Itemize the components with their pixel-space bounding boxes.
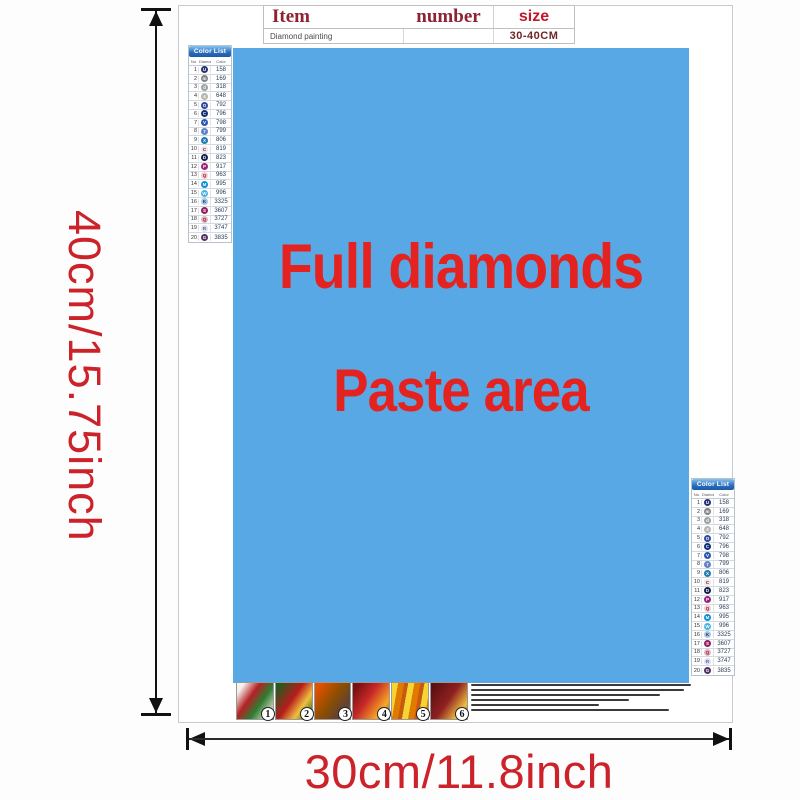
instruction-text-line (471, 689, 684, 691)
color-row-number: 5 (189, 102, 199, 108)
diamond-symbol-cell: Q (199, 172, 211, 179)
color-row: 19R3747 (189, 224, 231, 233)
diamond-symbol-cell: M (702, 614, 714, 621)
dmc-color-code: 995 (211, 181, 231, 187)
product-name-cell: Diamond painting (264, 29, 404, 43)
dmc-color-code: 792 (211, 102, 231, 108)
color-row-number: 6 (692, 544, 702, 550)
dmc-color-code: 3747 (714, 658, 734, 664)
step-thumbnail-2: 2 (275, 682, 313, 720)
diamond-symbol-icon: Q (201, 216, 208, 223)
diamond-symbol-cell: X (199, 137, 211, 144)
dmc-color-code: 963 (714, 605, 734, 611)
color-row: 15W996 (692, 622, 734, 631)
dmc-color-code: 158 (714, 500, 734, 506)
diamond-symbol-icon: X (201, 137, 208, 144)
height-dimension-arrow (141, 8, 171, 716)
color-list-column-headers: No. Diamond Color (692, 490, 734, 499)
diamond-symbol-icon: 7 (704, 561, 711, 568)
diamond-symbol-cell: O (199, 102, 211, 109)
color-row: 7V798 (692, 552, 734, 561)
color-row-number: 4 (692, 526, 702, 532)
column-color-label: Color (714, 492, 734, 497)
arrow-vertical-line (155, 11, 157, 713)
color-row: 16K3325 (692, 631, 734, 640)
color-row-number: 11 (692, 588, 702, 594)
step-number-badge: 2 (300, 707, 314, 721)
color-row: 3d318 (692, 517, 734, 526)
dmc-color-code: 3325 (714, 632, 734, 638)
color-row-number: 9 (189, 137, 199, 143)
diamond-symbol-cell: C (199, 146, 211, 153)
dmc-color-code: 648 (211, 93, 231, 99)
item-header-cell: Item (264, 6, 404, 28)
color-row: 13Q963 (189, 172, 231, 181)
color-row: 1U158 (189, 66, 231, 75)
color-row-number: 2 (189, 76, 199, 82)
arrow-bottom-cap (141, 713, 171, 716)
diamond-symbol-icon: M (704, 614, 711, 621)
number-header-cell: number (404, 6, 494, 28)
instructions-text (471, 684, 691, 720)
step-thumbnail-6: 6 (430, 682, 468, 720)
dmc-color-code: 819 (714, 579, 734, 585)
diamond-symbol-cell: S (702, 640, 714, 647)
color-list-rows: 1U1582m1693d318446485O7926C7967V79887799… (692, 499, 734, 675)
diamond-symbol-cell: O (702, 535, 714, 542)
color-row: 19R3747 (692, 657, 734, 666)
item-table-value-row: Diamond painting 30-40CM (264, 29, 574, 43)
color-row-number: 13 (189, 172, 199, 178)
diamond-symbol-icon: m (201, 75, 208, 82)
step-number-badge: 4 (377, 707, 391, 721)
color-row-number: 15 (189, 190, 199, 196)
color-row: 11D823 (189, 154, 231, 163)
dmc-color-code: 318 (714, 517, 734, 523)
dmc-color-code: 318 (211, 84, 231, 90)
color-row-number: 19 (692, 658, 702, 664)
color-row-number: 16 (189, 199, 199, 205)
diamond-symbol-cell: V (199, 119, 211, 126)
size-value-cell: 30-40CM (494, 29, 574, 43)
color-row: 87799 (189, 128, 231, 137)
size-header-cell: size (494, 6, 574, 28)
diamond-symbol-icon: R (201, 225, 208, 232)
paste-area-title-line2: Paste area (260, 356, 661, 425)
dmc-color-code: 3747 (211, 225, 231, 231)
color-row-number: 19 (189, 225, 199, 231)
diamond-symbol-cell: P (199, 163, 211, 170)
diamond-symbol-cell: M (199, 181, 211, 188)
color-row-number: 6 (189, 111, 199, 117)
diamond-symbol-icon: U (201, 66, 208, 73)
color-list-left: Color List No. Diamond Color 1U1582m1693… (188, 45, 232, 243)
dmc-color-code: 796 (211, 111, 231, 117)
product-diagram: 40cm/15.75inch Item number size Diamond … (0, 0, 800, 800)
diamond-symbol-icon: X (704, 570, 711, 577)
color-row-number: 13 (692, 605, 702, 611)
diamond-symbol-cell: m (702, 508, 714, 515)
diamond-symbol-cell: Q (199, 216, 211, 223)
color-row-number: 18 (692, 649, 702, 655)
color-row: 18Q3727 (189, 216, 231, 225)
dmc-color-code: 996 (714, 623, 734, 629)
color-row-number: 17 (189, 208, 199, 214)
color-row-number: 14 (189, 181, 199, 187)
diamond-symbol-cell: Q (702, 605, 714, 612)
color-row-number: 10 (189, 146, 199, 152)
diamond-symbol-cell: P (702, 596, 714, 603)
color-row: 20G3835 (692, 666, 734, 675)
color-row: 12P917 (189, 163, 231, 172)
dmc-color-code: 798 (714, 553, 734, 559)
diamond-symbol-cell: R (199, 225, 211, 232)
dmc-color-code: 798 (211, 120, 231, 126)
column-no-label: No. (189, 59, 199, 64)
diamond-symbol-icon: P (201, 163, 208, 170)
item-table-header-row: Item number size (264, 6, 574, 29)
dmc-color-code: 963 (211, 172, 231, 178)
diamond-symbol-cell: V (702, 552, 714, 559)
dmc-color-code: 806 (714, 570, 734, 576)
color-row: 16K3325 (189, 198, 231, 207)
color-row: 44648 (189, 92, 231, 101)
step-thumbnail-1: 1 (236, 682, 274, 720)
diamond-symbol-cell: R (702, 658, 714, 665)
color-row-number: 14 (692, 614, 702, 620)
color-row: 11D823 (692, 587, 734, 596)
diamond-symbol-icon: m (704, 508, 711, 515)
color-row-number: 10 (692, 579, 702, 585)
diamond-symbol-icon: D (201, 154, 208, 161)
color-row-number: 9 (692, 570, 702, 576)
diamond-symbol-cell: 4 (199, 93, 211, 100)
color-row: 18Q3727 (692, 649, 734, 658)
arrow-down-head-icon (149, 698, 163, 713)
paste-area: Full diamonds Paste area (233, 48, 689, 683)
color-row-number: 7 (692, 553, 702, 559)
diamond-symbol-cell: Q (702, 649, 714, 656)
dmc-color-code: 3835 (714, 668, 734, 674)
diamond-symbol-cell: X (702, 570, 714, 577)
step-thumbnail-3: 3 (314, 682, 352, 720)
color-row: 1U158 (692, 499, 734, 508)
instruction-text-line (471, 699, 629, 701)
diamond-symbol-icon: Q (201, 172, 208, 179)
color-row: 12P917 (692, 596, 734, 605)
dmc-color-code: 823 (714, 588, 734, 594)
dmc-color-code: 917 (211, 164, 231, 170)
dmc-color-code: 158 (211, 67, 231, 73)
diamond-symbol-icon: S (704, 640, 711, 647)
color-row: 3d318 (189, 84, 231, 93)
diamond-symbol-icon: G (201, 234, 208, 241)
diamond-symbol-icon: Q (704, 605, 711, 612)
color-row: 14M995 (189, 180, 231, 189)
diamond-symbol-icon: d (201, 84, 208, 91)
color-row-number: 5 (692, 535, 702, 541)
color-row: 2m169 (189, 75, 231, 84)
step-number-badge: 1 (261, 707, 275, 721)
color-row: 17S3607 (189, 207, 231, 216)
step-number-badge: 6 (455, 707, 469, 721)
instruction-strip: 123456 (179, 680, 734, 722)
dmc-color-code: 806 (211, 137, 231, 143)
color-row: 6C796 (189, 110, 231, 119)
diamond-symbol-cell: d (702, 517, 714, 524)
instruction-text-line (471, 694, 660, 696)
diamond-symbol-icon: D (704, 587, 711, 594)
color-row-number: 7 (189, 120, 199, 126)
diamond-symbol-icon: 4 (201, 93, 208, 100)
color-row: 10C819 (189, 145, 231, 154)
step-number-badge: 3 (338, 707, 352, 721)
color-row-number: 17 (692, 641, 702, 647)
color-row: 2m169 (692, 508, 734, 517)
dmc-color-code: 799 (714, 561, 734, 567)
diamond-symbol-cell: 4 (702, 526, 714, 533)
diamond-symbol-icon: O (704, 535, 711, 542)
color-row-number: 11 (189, 155, 199, 161)
diamond-symbol-cell: 7 (199, 128, 211, 135)
color-row: 20G3835 (189, 233, 231, 242)
column-no-label: No. (692, 492, 702, 497)
color-row: 5O792 (692, 534, 734, 543)
diamond-symbol-cell: C (199, 110, 211, 117)
dmc-color-code: 996 (211, 190, 231, 196)
diamond-symbol-cell: U (199, 66, 211, 73)
dmc-color-code: 792 (714, 535, 734, 541)
diamond-symbol-icon: 4 (704, 526, 711, 533)
color-row-number: 12 (692, 597, 702, 603)
instruction-text-line (471, 704, 599, 706)
color-row-number: 3 (692, 517, 702, 523)
dmc-color-code: 3727 (211, 216, 231, 222)
dmc-color-code: 3325 (211, 199, 231, 205)
color-row: 6C796 (692, 543, 734, 552)
color-row-number: 8 (189, 128, 199, 134)
color-row: 17S3607 (692, 640, 734, 649)
diamond-symbol-icon: M (201, 181, 208, 188)
diamond-symbol-icon: 7 (201, 128, 208, 135)
color-row: 7V798 (189, 119, 231, 128)
dmc-color-code: 648 (714, 526, 734, 532)
diamond-symbol-icon: Q (704, 649, 711, 656)
diamond-symbol-icon: U (704, 499, 711, 506)
diamond-symbol-cell: D (702, 587, 714, 594)
diamond-symbol-icon: d (704, 517, 711, 524)
diamond-symbol-cell: G (702, 667, 714, 674)
diamond-symbol-cell: U (702, 499, 714, 506)
diamond-symbol-icon: K (704, 631, 711, 638)
color-row: 14M995 (692, 613, 734, 622)
color-row: 15W996 (189, 189, 231, 198)
diamond-symbol-cell: m (199, 75, 211, 82)
color-row-number: 1 (692, 500, 702, 506)
diamond-symbol-icon: V (704, 552, 711, 559)
diamond-symbol-icon: G (704, 667, 711, 674)
diamond-symbol-cell: W (199, 190, 211, 197)
diamond-symbol-icon: W (704, 623, 711, 630)
paste-area-title-line1: Full diamonds (260, 231, 661, 303)
color-row-number: 2 (692, 509, 702, 515)
diamond-symbol-icon: S (201, 207, 208, 214)
dmc-color-code: 3727 (714, 649, 734, 655)
dmc-color-code: 995 (714, 614, 734, 620)
diamond-symbol-cell: C (702, 543, 714, 550)
dmc-color-code: 3607 (211, 208, 231, 214)
color-list-header: Color List (189, 46, 231, 57)
column-color-label: Color (211, 59, 231, 64)
dmc-color-code: 169 (714, 509, 734, 515)
color-row: 44648 (692, 525, 734, 534)
color-row: 13Q963 (692, 605, 734, 614)
diamond-symbol-cell: D (199, 154, 211, 161)
step-number-badge: 5 (416, 707, 430, 721)
step-thumbnail-4: 4 (352, 682, 390, 720)
color-row: 10C819 (692, 578, 734, 587)
color-row: 5O792 (189, 101, 231, 110)
dmc-color-code: 917 (714, 597, 734, 603)
diamond-symbol-icon: K (201, 198, 208, 205)
diamond-symbol-icon: V (201, 119, 208, 126)
color-row-number: 16 (692, 632, 702, 638)
dmc-color-code: 3835 (211, 235, 231, 241)
diamond-symbol-icon: P (704, 596, 711, 603)
step-thumbnail-5: 5 (391, 682, 429, 720)
height-dimension-label: 40cm/15.75inch (58, 210, 110, 542)
color-row: 9X806 (692, 569, 734, 578)
dmc-color-code: 169 (211, 76, 231, 82)
width-dimension-label: 30cm/11.8inch (186, 744, 732, 799)
color-row-number: 1 (189, 67, 199, 73)
color-list-rows: 1U1582m1693d318446485O7926C7967V79887799… (189, 66, 231, 242)
column-diamond-label: Diamond (702, 492, 714, 497)
color-list-header: Color List (692, 479, 734, 490)
diamond-symbol-icon: C (201, 146, 208, 153)
color-row-number: 18 (189, 216, 199, 222)
diamond-symbol-cell: C (702, 579, 714, 586)
color-row-number: 4 (189, 93, 199, 99)
arrow-horizontal-line (189, 738, 729, 740)
diamond-symbol-icon: W (201, 190, 208, 197)
number-value-cell (404, 29, 494, 43)
diamond-symbol-icon: C (704, 543, 711, 550)
color-row-number: 20 (189, 235, 199, 241)
instruction-text-line (471, 709, 669, 711)
diamond-symbol-icon: R (704, 658, 711, 665)
color-row: 87799 (692, 561, 734, 570)
diamond-symbol-cell: K (702, 631, 714, 638)
color-list-right: Color List No. Diamond Color 1U1582m1693… (691, 478, 735, 676)
diamond-symbol-cell: G (199, 234, 211, 241)
dmc-color-code: 799 (211, 128, 231, 134)
diamond-symbol-cell: 7 (702, 561, 714, 568)
color-row-number: 20 (692, 668, 702, 674)
color-list-column-headers: No. Diamond Color (189, 57, 231, 66)
dmc-color-code: 823 (211, 155, 231, 161)
dmc-color-code: 796 (714, 544, 734, 550)
item-info-table: Item number size Diamond painting 30-40C… (263, 5, 575, 44)
instruction-text-line (471, 684, 691, 686)
diamond-symbol-cell: W (702, 623, 714, 630)
diamond-symbol-icon: C (704, 579, 711, 586)
color-row-number: 8 (692, 561, 702, 567)
diamond-symbol-cell: S (199, 207, 211, 214)
dmc-color-code: 819 (211, 146, 231, 152)
dmc-color-code: 3607 (714, 641, 734, 647)
color-row: 9X806 (189, 136, 231, 145)
step-thumbnails: 123456 (236, 682, 468, 720)
diamond-symbol-icon: O (201, 102, 208, 109)
canvas-poster: Item number size Diamond painting 30-40C… (178, 5, 733, 723)
diamond-symbol-cell: d (199, 84, 211, 91)
column-diamond-label: Diamond (199, 59, 211, 64)
color-row-number: 15 (692, 623, 702, 629)
diamond-symbol-icon: C (201, 110, 208, 117)
color-row-number: 12 (189, 164, 199, 170)
color-row-number: 3 (189, 84, 199, 90)
diamond-symbol-cell: K (199, 198, 211, 205)
